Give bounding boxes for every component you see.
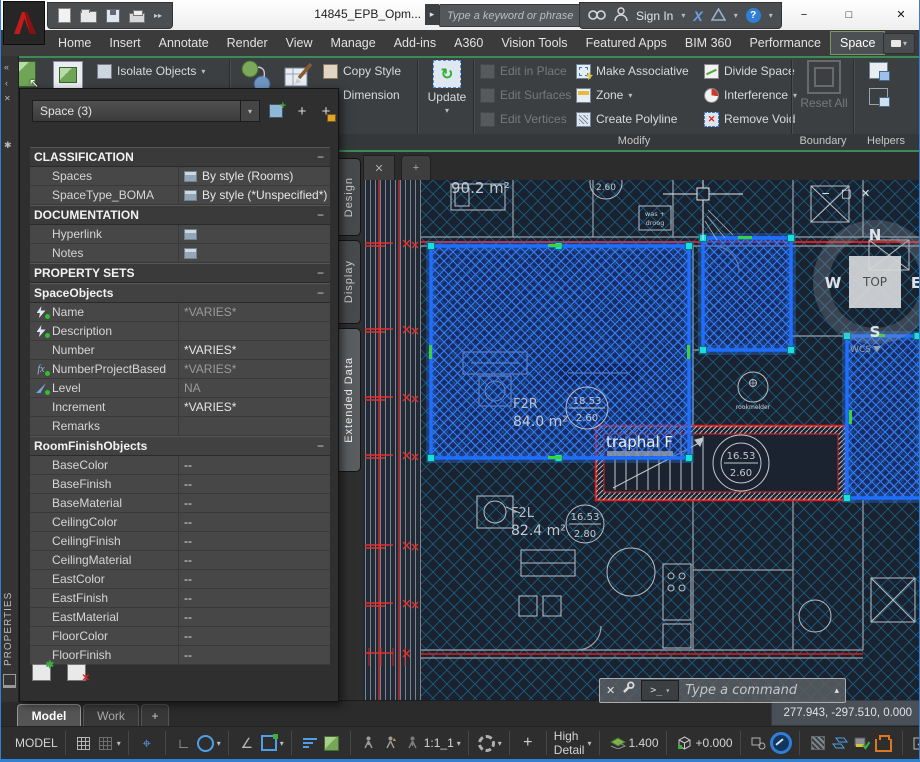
command-input[interactable]: Type a command [685, 683, 828, 698]
new-file-icon[interactable] [58, 8, 71, 23]
interference-button[interactable]: Interference ▾ [704, 86, 797, 104]
property-row[interactable]: EastColor-- [30, 570, 330, 589]
object-snap-icon[interactable] [258, 732, 280, 754]
elevation-cube-icon[interactable] [674, 732, 696, 754]
tab-performance[interactable]: Performance [740, 32, 830, 54]
polar-chevron-icon[interactable]: ▾ [217, 739, 221, 748]
maximize-button[interactable]: □ [839, 6, 859, 23]
cut-plane-value[interactable]: 1.400 [629, 736, 659, 750]
tab-render[interactable]: Render [218, 32, 277, 54]
model-space-button[interactable]: MODEL [15, 736, 58, 750]
property-row[interactable]: CeilingFinish-- [30, 532, 330, 551]
interference-chevron-icon: ▾ [793, 91, 797, 100]
ribbon-collapse-chevron-icon: ▾ [903, 39, 907, 48]
tab-annotate[interactable]: Annotate [150, 32, 218, 54]
osnap-chevron-icon[interactable]: ▾ [280, 739, 284, 748]
selection-chevron-icon[interactable]: ▾ [240, 101, 259, 121]
palette-move-icon[interactable]: « [4, 62, 9, 72]
coordinates-display: 277.943, -297.510, 0.000 [771, 700, 920, 726]
close-button[interactable]: ✕ [891, 6, 911, 23]
viewport-minimize-icon: − [821, 187, 830, 200]
property-row[interactable]: Number*VARIES* [30, 341, 330, 360]
property-row[interactable]: FloorFinish-- [30, 646, 330, 665]
help-chevron-icon[interactable]: ▾ [769, 11, 773, 20]
create-polyline-button[interactable]: Create Polyline [576, 110, 677, 128]
table-icon [184, 229, 197, 240]
signin-chevron-icon[interactable]: ▾ [681, 11, 685, 20]
palette-tab-extended-data[interactable]: Extended Data [338, 328, 361, 472]
divide-space-button[interactable]: Divide Space [704, 62, 795, 80]
tab-bim360[interactable]: BIM 360 [676, 32, 741, 54]
new-drawing-tab-button[interactable]: + [401, 155, 431, 180]
detail-level-control[interactable]: High Detail [554, 729, 585, 757]
open-file-icon[interactable] [80, 11, 97, 23]
boundary-panel-label[interactable]: Boundary [793, 135, 853, 147]
ribbon-collapse-button[interactable]: ▾ [883, 33, 915, 54]
create-polyline-icon [576, 112, 591, 127]
toggle-pickadd-icon[interactable]: + [316, 101, 336, 121]
subsection-spaceobjects[interactable]: SpaceObjects− [30, 283, 330, 303]
copy-style-button[interactable]: Copy Style [323, 62, 401, 80]
helper-display-button[interactable] [869, 62, 888, 79]
property-row[interactable]: Remarks [30, 417, 330, 436]
edit-surfaces-icon [480, 88, 495, 103]
property-row[interactable]: LevelNA [30, 379, 330, 398]
doc-switch-icon[interactable]: ▸ [425, 4, 439, 25]
annotation-monitor-icon[interactable]: + [517, 732, 539, 754]
palette-tab-design[interactable]: Design [338, 158, 361, 236]
property-row[interactable]: fxNumberProjectBased*VARIES* [30, 360, 330, 379]
palette-arrow-icon[interactable]: ‹ [5, 78, 8, 88]
svg-text:18.53: 18.53 [573, 396, 602, 407]
tab-manage[interactable]: Manage [322, 32, 385, 54]
annotation-scale-icon[interactable] [402, 732, 424, 754]
autocad-a-icon [10, 10, 38, 36]
viewport-window-controls[interactable]: − □ ✕ [821, 187, 870, 200]
cmdline-history-icon[interactable]: ▴ [834, 685, 839, 696]
tab-a360[interactable]: A360 [445, 32, 492, 54]
helpers-panel-label[interactable]: Helpers [855, 135, 917, 147]
edit-in-place-button: Edit in Place [480, 62, 567, 80]
property-row[interactable]: Description [30, 322, 330, 341]
add-property-set-icon[interactable]: ✱ [32, 664, 51, 681]
layout-tab-work[interactable]: Work [83, 704, 139, 727]
small-subtext-bar [607, 451, 673, 456]
facade-strip [363, 180, 421, 700]
save-icon[interactable] [106, 9, 120, 23]
annotation-visibility-icon[interactable] [358, 732, 380, 754]
svg-text:rookmelder: rookmelder [736, 404, 771, 411]
isolate-objects-icon [97, 64, 112, 79]
annotation-autoscale-icon[interactable] [380, 732, 402, 754]
tab-view[interactable]: View [277, 32, 322, 54]
remove-void-icon: ✕ [704, 112, 719, 127]
palette-autohide-icon[interactable] [3, 674, 16, 688]
prompt-chevron-icon: ▾ [665, 686, 670, 695]
viewport-close-icon: ✕ [861, 187, 870, 200]
print-icon[interactable] [129, 13, 145, 23]
application-menu-button[interactable] [3, 1, 45, 45]
update-refresh-icon: ↻ [433, 60, 461, 88]
tray-icon[interactable] [873, 732, 895, 754]
space-top-right[interactable] [703, 238, 791, 350]
viewport-restore-icon: □ [841, 187, 851, 200]
svg-text:was +: was + [645, 210, 665, 218]
svg-text:F2R: F2R [513, 397, 538, 412]
svg-text:traphal F: traphal F [606, 433, 673, 451]
table-icon [184, 171, 197, 182]
snap-grid-icon[interactable] [95, 732, 117, 754]
svg-text:2.60: 2.60 [730, 468, 752, 479]
command-line[interactable]: ✕ >_▾ Type a command ▴ [599, 678, 846, 703]
file-tab-bar: ✕ + [363, 152, 920, 181]
layout-tab-model[interactable]: Model [17, 704, 81, 727]
layers-status-icon[interactable] [829, 732, 851, 754]
space-style-button[interactable] [53, 61, 83, 89]
zone-button[interactable]: Zone ▾ [576, 86, 632, 104]
tab-space[interactable]: Space [830, 31, 885, 55]
polar-tracking-icon[interactable] [195, 732, 217, 754]
elevation-value[interactable]: +0.000 [696, 736, 733, 750]
drawing-canvas[interactable]: rookmelder 90.2 m² 2.60 F2R 84.0 m² 18.5… [363, 180, 920, 700]
user-avatar-icon [614, 7, 628, 25]
svg-text:E: E [911, 274, 920, 292]
table-icon [184, 248, 197, 259]
divide-space-icon [704, 64, 719, 79]
a360-icon[interactable] [711, 8, 726, 24]
edit-vertices-icon [480, 112, 495, 127]
isodraft-icon[interactable]: ∠ [236, 732, 258, 754]
trusted-dwg-icon[interactable] [851, 732, 873, 754]
formula-icon: fx [37, 364, 44, 375]
hardware-acceleration-icon[interactable] [770, 732, 792, 754]
update-chevron-icon: ▾ [445, 106, 449, 115]
edit-surfaces-button: Edit Surfaces [480, 86, 571, 104]
palette-title-strip[interactable]: « ‹ ✕ ✱ PROPERTIES [1, 56, 19, 702]
quick-access-toolbar: ▸▸ [47, 2, 173, 29]
lineweight-icon[interactable] [299, 732, 321, 754]
property-row[interactable]: Increment*VARIES* [30, 398, 330, 417]
make-associative-icon [576, 64, 591, 79]
isolate-objects-button[interactable]: Isolate Objects ▾ [97, 62, 205, 80]
workspace-gear-icon[interactable] [476, 732, 498, 754]
tab-insert[interactable]: Insert [100, 32, 149, 54]
minimize-button[interactable]: − [794, 6, 814, 23]
style-box-icon [53, 61, 83, 89]
properties-palette: Space (3) ▾ + + + CLASSIFICATION− Spaces… [19, 88, 339, 702]
make-associative-button[interactable]: Make Associative [576, 62, 689, 80]
property-row[interactable]: Hyperlink [30, 225, 330, 244]
property-row[interactable]: BaseColor-- [30, 456, 330, 475]
reset-all-button: Reset All [798, 60, 850, 110]
svg-text:N: N [869, 226, 882, 244]
update-button[interactable]: ↻ Update ▾ [424, 60, 470, 115]
zone-icon [576, 88, 591, 103]
edit-vertices-button: Edit Vertices [480, 110, 567, 128]
section-property-sets[interactable]: PROPERTY SETS− [30, 263, 330, 283]
svg-text:2.60: 2.60 [596, 183, 616, 193]
infocenter-strip: Sign In ▾ X ▾ ? ▾ [579, 2, 782, 29]
exchange-apps-icon[interactable]: X [693, 8, 702, 24]
selection-dropdown[interactable]: Space (3) ▾ [32, 100, 260, 122]
clean-screen-icon[interactable] [910, 732, 920, 754]
grid-chevron-icon[interactable]: ▾ [117, 739, 121, 748]
table-icon [184, 190, 197, 201]
svg-text:84.0 m²: 84.0 m² [513, 414, 568, 430]
svg-text:82.4 m²: 82.4 m² [511, 523, 566, 539]
snap-mode-icon[interactable]: ⌖ [136, 732, 158, 754]
subsection-roomfinishobjects[interactable]: RoomFinishObjects− [30, 436, 330, 456]
copy-style-icon [323, 64, 338, 79]
new-layout-button[interactable]: + [141, 704, 169, 727]
quick-select-icon[interactable]: + [266, 101, 286, 121]
property-grid: CLASSIFICATION− SpacesBy style (Rooms) S… [30, 147, 330, 665]
svg-text:16.53: 16.53 [727, 451, 756, 462]
reset-all-icon [807, 60, 841, 94]
svg-text:90.2 m²: 90.2 m² [451, 180, 510, 197]
ribbon-state-icon [891, 40, 901, 47]
help-icon[interactable]: ? [746, 8, 761, 23]
svg-text:2.80: 2.80 [574, 529, 596, 540]
style-cube-icon [59, 67, 77, 83]
cmdline-customize-icon[interactable] [621, 681, 635, 700]
help-search-input[interactable]: Type a keyword or phrase [439, 4, 586, 27]
autocad-window: 14845_EPB_Opm... ▸ Type a keyword or phr… [0, 0, 920, 762]
sign-in-button[interactable]: Sign In [636, 9, 673, 23]
cut-plane-icon[interactable] [607, 732, 629, 754]
transparency-icon[interactable] [321, 732, 343, 754]
detail-chevron-icon[interactable]: ▾ [587, 739, 591, 748]
cmdline-close-icon[interactable]: ✕ [606, 684, 615, 697]
section-documentation[interactable]: DOCUMENTATION− [30, 205, 330, 225]
isolate-objects-status-icon[interactable] [807, 732, 829, 754]
helper-boundary-button[interactable] [869, 88, 888, 105]
svg-text:F2L: F2L [511, 506, 535, 521]
tab-add-ins[interactable]: Add-ins [385, 32, 445, 54]
tab-home[interactable]: Home [49, 32, 100, 54]
property-row[interactable]: BaseMaterial-- [30, 494, 330, 513]
space-right[interactable] [847, 336, 920, 498]
command-prompt-button[interactable]: >_▾ [641, 680, 679, 701]
select-objects-icon[interactable]: + [292, 101, 312, 121]
svg-text:16.53: 16.53 [571, 512, 600, 523]
workspace-switching-icon[interactable] [748, 732, 770, 754]
isolate-chevron-icon: ▾ [201, 67, 205, 76]
remove-property-set-icon[interactable]: ✕ [67, 664, 86, 681]
gear-chevron-icon[interactable]: ▾ [498, 739, 502, 748]
a360-chevron-icon[interactable]: ▾ [734, 11, 738, 20]
palette-footer: ✱ ✕ [32, 664, 86, 681]
property-row[interactable]: FloorColor-- [30, 627, 330, 646]
annotation-scale-value[interactable]: 1:1_1 [424, 736, 454, 750]
status-bar: MODEL ▾ ⌖ ∟ ▾ ∠ ▾ 1:1_1 ▾ ▾ + High Detai… [1, 726, 920, 759]
palette-close-icon[interactable]: ✕ [4, 94, 11, 103]
tab-featured-apps[interactable]: Featured Apps [577, 32, 676, 54]
property-row[interactable]: EastFinish-- [30, 589, 330, 608]
scale-chevron-icon[interactable]: ▾ [457, 739, 461, 748]
zone-chevron-icon: ▾ [628, 91, 632, 100]
interference-icon [704, 88, 719, 103]
svg-text:W: W [825, 274, 842, 292]
ribbon-tab-bar: Home Insert Annotate Render View Manage … [1, 30, 920, 56]
document-title: 14845_EPB_Opm... [241, 7, 421, 21]
svg-text:droog: droog [646, 219, 665, 227]
property-row[interactable]: CeilingMaterial-- [30, 551, 330, 570]
file-tab-close-icon[interactable]: ✕ [363, 155, 395, 180]
svg-text:2.60: 2.60 [576, 413, 598, 424]
palette-settings-icon[interactable]: ✱ [4, 140, 12, 151]
remove-void-button[interactable]: ✕ Remove Void [704, 110, 795, 128]
grid-display-icon[interactable] [73, 732, 95, 754]
section-classification[interactable]: CLASSIFICATION− [30, 147, 330, 167]
modify-panel-label[interactable]: Modify [479, 135, 789, 147]
property-row[interactable]: Notes [30, 244, 330, 263]
property-row[interactable]: Name*VARIES* [30, 303, 330, 322]
property-row[interactable]: EastMaterial-- [30, 608, 330, 627]
wcs-menu[interactable]: WCS [850, 345, 871, 355]
property-row[interactable]: SpaceType_BOMABy style (*Unspecified*) [30, 186, 330, 205]
property-row[interactable]: SpacesBy style (Rooms) [30, 167, 330, 186]
search-binoculars-icon[interactable] [588, 8, 606, 24]
edit-in-place-icon [480, 64, 495, 79]
qat-more-icon[interactable]: ▸▸ [154, 11, 162, 20]
ortho-mode-icon[interactable]: ∟ [173, 732, 195, 754]
property-row[interactable]: BaseFinish-- [30, 475, 330, 494]
palette-tab-display[interactable]: Display [338, 240, 361, 324]
palette-title: PROPERTIES [3, 556, 14, 666]
tab-vision-tools[interactable]: Vision Tools [492, 32, 576, 54]
svg-text:S: S [870, 323, 881, 341]
svg-text:TOP: TOP [862, 275, 887, 289]
property-row[interactable]: CeilingColor-- [30, 513, 330, 532]
